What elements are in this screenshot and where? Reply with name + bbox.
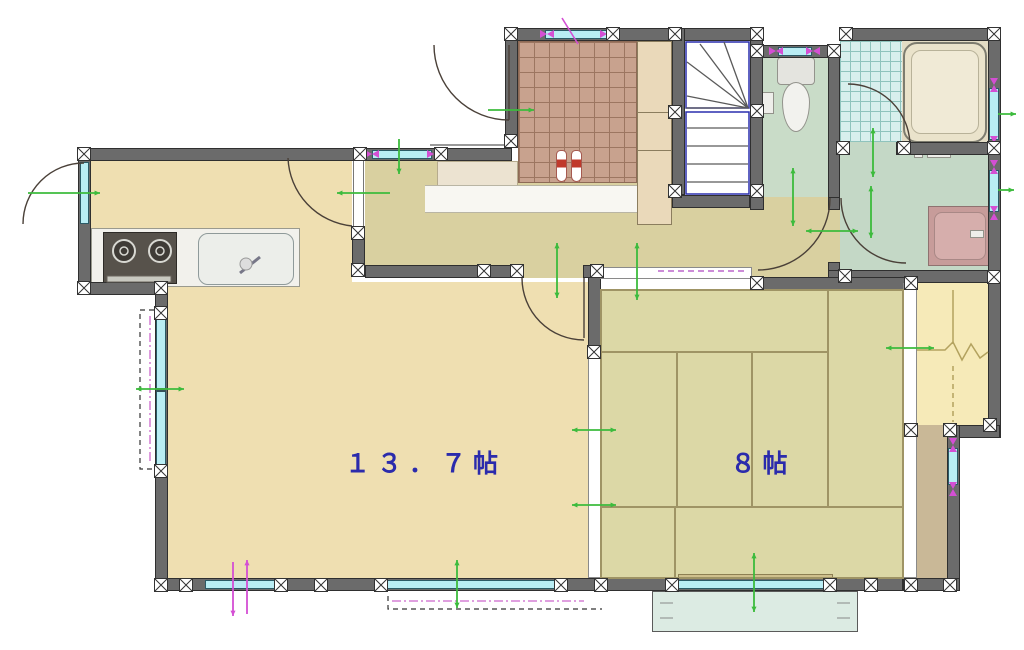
floor-plan: １３．７帖 ８帖 <box>0 0 1024 650</box>
stove-icon <box>103 232 177 284</box>
staircase <box>685 41 750 195</box>
sliding-track-tatami-corridor <box>903 283 917 578</box>
window-kitchen-backdoor <box>80 162 89 224</box>
wall-stairs-left <box>672 28 685 195</box>
door-swing-kitchen-backdoor <box>23 163 84 224</box>
wall-kitchen-bottom <box>78 282 168 295</box>
wall-toilet-bottom-stub <box>750 197 764 210</box>
wall-stairs-right <box>750 28 763 197</box>
window-ldk-left-rail <box>156 388 166 392</box>
slippers-icon <box>556 150 567 182</box>
ventilation-arrow-head <box>1011 111 1016 116</box>
wall-genkan-left <box>505 28 518 148</box>
wall-hall-bottom <box>365 265 522 278</box>
door-kitchen-hall-leaf <box>353 152 364 230</box>
closet-oshiire <box>917 283 988 425</box>
window-washroom-east <box>989 170 999 212</box>
shoe-cabinet <box>637 41 672 225</box>
room-label-tatami: ８帖 <box>705 444 820 480</box>
eave-dashed-bottom <box>388 596 602 609</box>
window-toilet <box>778 47 812 56</box>
sliding-track-ldk-tatami <box>588 352 601 578</box>
shoe-cabinet-shelf-line <box>638 112 671 113</box>
ventilation-arrow-head <box>1009 187 1014 192</box>
porch-edge-line <box>430 144 506 146</box>
toilet-paper-holder-icon <box>762 92 774 114</box>
window-ldk-bottom-large <box>385 580 560 589</box>
window-corridor-east <box>948 448 958 485</box>
toilet-icon <box>777 57 815 85</box>
room-label-ldk: １３．７帖 <box>335 444 515 480</box>
wall-washroom-west-upper <box>828 45 840 198</box>
ventilation-arrow-head <box>136 386 141 391</box>
wall-bath-top <box>840 28 1000 41</box>
genkan-step <box>425 185 637 213</box>
shoe-cabinet-shelf-line <box>638 150 671 151</box>
ventilation-arrow-head <box>454 603 459 608</box>
window-genkan-top <box>545 30 607 39</box>
door-swing-entrance <box>434 45 509 120</box>
bathtub-inner <box>911 50 979 134</box>
window-bathroom-east <box>989 88 999 140</box>
window-hall-top <box>372 150 432 159</box>
window-arrow-head <box>230 611 235 616</box>
window-ldk-bottom-small <box>205 580 275 589</box>
wall-kitchen-hall-divider <box>352 230 365 277</box>
floor-ldk <box>168 282 598 578</box>
washbasin-faucet-icon <box>970 230 984 238</box>
wall-top-main <box>505 28 757 41</box>
kitchen-sink-icon <box>198 233 294 285</box>
corridor-east <box>917 425 947 578</box>
floor-tatami-room <box>601 290 903 578</box>
wall-kitchen-top <box>78 148 366 161</box>
wall-bottom-right <box>903 578 960 591</box>
window-tatami-veranda <box>678 580 833 589</box>
slippers-icon <box>571 150 582 182</box>
wall-toilet-bottom-stub <box>828 197 840 210</box>
sliding-track-hall-tatami <box>600 267 752 279</box>
wall-stairs-bottom <box>672 195 750 208</box>
wall-tatami-top <box>752 277 917 290</box>
veranda-deck <box>652 591 858 632</box>
wall-tatami-divider-stub <box>588 277 601 357</box>
wall-bath-washroom <box>896 142 988 155</box>
bath-tile-floor <box>840 41 902 142</box>
